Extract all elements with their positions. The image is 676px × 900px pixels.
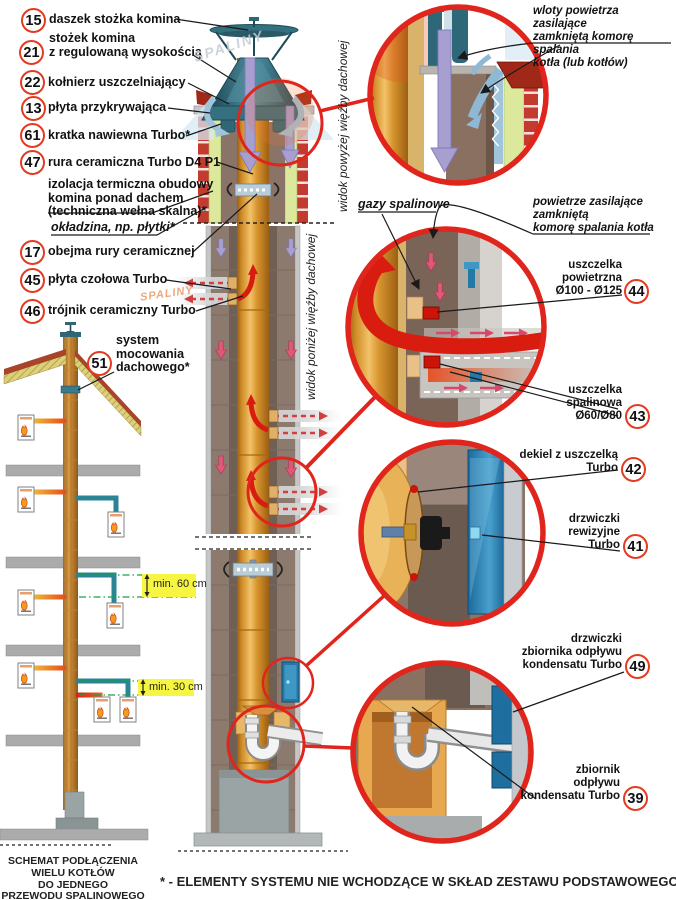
callout-number-39: 39 (623, 786, 648, 811)
main-chimney-cross-section (174, 17, 348, 851)
callout-label-46: trójnik ceramiczny Turbo (48, 304, 196, 318)
min-distance-guides (79, 574, 196, 696)
callout-number-43: 43 (625, 404, 650, 429)
callout-number-text: 22 (24, 75, 40, 91)
min-60-label: min. 60 cm (153, 578, 207, 590)
pipe-clamp-lower (224, 560, 282, 578)
callout-number-text: 13 (25, 101, 41, 117)
callout-number-text: 46 (24, 304, 40, 320)
annotation-air-inlets: wloty powietrza zasilające zamkniętą kom… (533, 5, 675, 70)
note-cladding: okładzina, np. płytki* (51, 221, 175, 235)
callout-number-text: 42 (625, 462, 641, 478)
detail-circle-tee-section (348, 229, 545, 427)
callout-number-15: 15 (21, 8, 46, 33)
callout-label-42: dekiel z uszczelką Turbo (480, 449, 618, 475)
annotation-flue-gases: gazy spalinowe (358, 198, 450, 212)
callout-label-21: stożek komina z regulowaną wysokością (49, 32, 202, 59)
callout-number-text: 21 (23, 45, 39, 61)
schematic-caption: SCHEMAT PODŁĄCZENIA WIELU KOTŁÓW DO JEDN… (0, 856, 146, 900)
pipe-clamp-upper (228, 183, 279, 196)
view-label-below-roof: widok poniżej więźby dachowej (304, 234, 318, 400)
detail-circle-air-inlets (358, 0, 552, 185)
min-30-label: min. 30 cm (149, 681, 203, 693)
callout-label-15: daszek stożka komina (49, 13, 180, 27)
callout-number-13: 13 (21, 96, 46, 121)
callout-number-45: 45 (20, 268, 45, 293)
callout-label-13: płyta przykrywająca (48, 101, 166, 115)
note-insulation: izolacja termiczna obudowy komina ponad … (48, 178, 213, 219)
callout-number-text: 51 (91, 356, 107, 372)
callout-number-text: 41 (627, 539, 643, 555)
view-label-above-roof: widok powyżej więźby dachowej (336, 41, 350, 212)
callout-number-text: 15 (25, 13, 41, 29)
callout-number-42: 42 (621, 457, 646, 482)
schematic-base (0, 792, 148, 845)
callout-number-22: 22 (20, 70, 45, 95)
callout-label-45: płyta czołowa Turbo (48, 273, 167, 287)
callout-number-text: 39 (627, 791, 643, 807)
callout-number-text: 47 (24, 155, 40, 171)
chimney-system-diagram: 15 daszek stożka komina 21 stożek komina… (0, 0, 676, 900)
callout-label-22: kołnierz uszczelniający (48, 76, 186, 90)
callout-label-49: drzwiczki zbiornika odpływu kondensatu T… (478, 633, 622, 672)
callout-number-text: 61 (24, 128, 40, 144)
annotation-air-supply: powietrze zasilające zamkniętą komorę sp… (533, 196, 663, 235)
callout-number-text: 44 (628, 284, 644, 300)
callout-number-text: 45 (24, 273, 40, 289)
callout-label-51: system mocowania dachowego* (116, 334, 190, 375)
callout-number-61: 61 (20, 123, 45, 148)
callout-number-49: 49 (625, 654, 650, 679)
revision-door (282, 662, 299, 702)
callout-number-46: 46 (20, 299, 45, 324)
callout-number-text: 49 (629, 659, 645, 675)
callout-number-44: 44 (624, 279, 649, 304)
callout-label-44: uszczelka powietrzna Ø100 - Ø125 (527, 259, 622, 298)
callout-label-41: drzwiczki rewizyjne Turbo (527, 513, 620, 552)
callout-number-text: 43 (629, 409, 645, 425)
asterisk-note: * - ELEMENTY SYSTEMU NIE WCHODZĄCE W SKŁ… (160, 874, 676, 889)
detail-circle-condensate (350, 660, 545, 842)
callout-label-43: uszczelka spalinowa Ø60/Ø80 (527, 384, 622, 423)
callout-label-61: kratka nawiewna Turbo* (48, 129, 190, 143)
callout-number-text: 17 (24, 245, 40, 261)
callout-label-47: rura ceramiczna Turbo D4 P1 (48, 156, 220, 170)
section-break (193, 534, 315, 550)
callout-number-17: 17 (20, 240, 45, 265)
callout-label-39: zbiornik odpływu kondensatu Turbo (478, 764, 620, 803)
callout-number-21: 21 (19, 40, 44, 65)
callout-number-41: 41 (623, 534, 648, 559)
callout-number-47: 47 (20, 150, 45, 175)
callout-number-51: 51 (87, 351, 112, 376)
callout-label-17: obejma rury ceramicznej (48, 245, 195, 259)
schematic-chimney (60, 322, 81, 810)
